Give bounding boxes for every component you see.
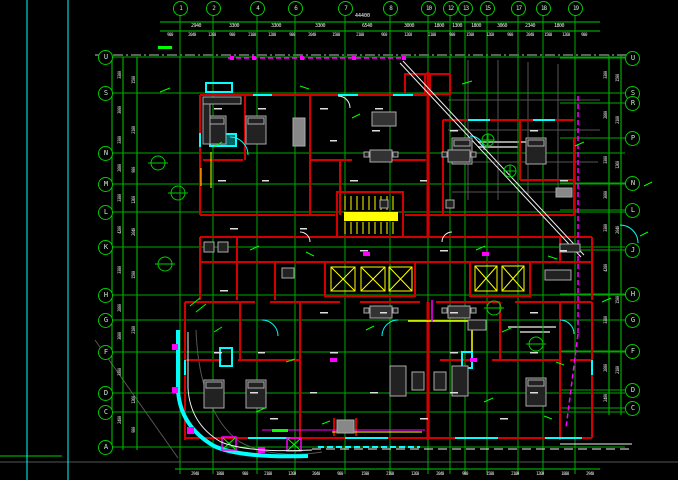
grid-bubble-left-M: M: [98, 177, 113, 192]
dimension-text: 1500: [486, 472, 494, 476]
dimension-text: 1500: [544, 33, 552, 37]
dimension-text: 2040: [132, 228, 136, 236]
dimension-text: 3060: [497, 24, 507, 28]
dimension-text: 1260: [411, 472, 419, 476]
dimension-text: 1500: [132, 271, 136, 279]
dimension-text: 2040: [312, 472, 320, 476]
grid-bubble-top-1: 1: [173, 1, 188, 16]
dimension-text: 1260: [486, 33, 494, 37]
dimension-text: 900: [229, 33, 235, 37]
cad-drawing-canvas[interactable]: 44400 12467810121315171819USNMLKHGFDCAUS…: [0, 0, 678, 480]
dimension-text: 2040: [616, 226, 620, 234]
dimension-text: 1260: [288, 472, 296, 476]
dimension-text: 2400: [604, 394, 608, 402]
dimension-text: 2100: [356, 33, 364, 37]
dimension-text: 2800: [118, 164, 122, 172]
dimension-text: 2100: [248, 33, 256, 37]
grid-bubble-top-8: 8: [383, 1, 398, 16]
dimension-text: 900: [132, 167, 136, 173]
dimension-text: 1500: [616, 296, 620, 304]
grid-bubble-right-C: C: [625, 401, 640, 416]
dimension-text: 1260: [536, 472, 544, 476]
grid-bubble-left-D: D: [98, 386, 113, 401]
dimension-text: 3300: [118, 136, 122, 144]
dimension-text: 900: [337, 472, 343, 476]
grid-labels-overlay: 44400 12467810121315171819USNMLKHGFDCAUS…: [0, 0, 678, 480]
dimension-text: 1800: [471, 24, 481, 28]
grid-bubble-top-18: 18: [536, 1, 551, 16]
dimension-text: 3300: [604, 316, 608, 324]
dimension-text: 2100: [132, 326, 136, 334]
dimension-text: 2400: [118, 416, 122, 424]
dimension-text: 6540: [362, 24, 372, 28]
dimension-text: 1500: [466, 33, 474, 37]
dimension-text: 1800: [434, 24, 444, 28]
dimension-text: 1500: [616, 74, 620, 82]
dimension-text: 3300: [315, 24, 325, 28]
dimension-text: 2100: [511, 472, 519, 476]
dimension-text: 2940: [586, 472, 594, 476]
dimension-text: 4200: [118, 226, 122, 234]
dimension-text: 2100: [616, 366, 620, 374]
dimension-text: 2800: [118, 304, 122, 312]
dimension-text: 1260: [208, 33, 216, 37]
dimension-text: 1200: [268, 33, 276, 37]
dimension-text: 3300: [271, 24, 281, 28]
grid-bubble-right-R: R: [625, 96, 640, 111]
grid-bubble-top-6: 6: [288, 1, 303, 16]
dimension-text: 2940: [191, 24, 201, 28]
dimension-text: 2040: [308, 33, 316, 37]
grid-bubble-top-10: 10: [421, 1, 436, 16]
dimension-text: 3000: [604, 191, 608, 199]
dimension-text: 2800: [604, 111, 608, 119]
dimension-text: 1800: [561, 472, 569, 476]
dimension-text: 2040: [436, 472, 444, 476]
dimension-text: 1260: [132, 396, 136, 404]
dimension-text: 1500: [132, 76, 136, 84]
grid-bubble-left-H: H: [98, 288, 113, 303]
grid-bubble-left-U: U: [98, 50, 113, 65]
dimension-text: 3300: [604, 156, 608, 164]
dimension-text: 900: [167, 33, 173, 37]
grid-bubble-left-A: A: [98, 440, 113, 455]
dimension-text: 900: [462, 472, 468, 476]
grid-bubble-top-2: 2: [206, 1, 221, 16]
grid-bubble-right-J: J: [625, 243, 640, 258]
grid-bubble-top-15: 15: [480, 1, 495, 16]
dimension-text: 900: [507, 33, 513, 37]
grid-bubble-left-F: F: [98, 345, 113, 360]
grid-bubble-right-U: U: [625, 51, 640, 66]
grid-bubble-top-17: 17: [511, 1, 526, 16]
grid-bubble-top-7: 7: [338, 1, 353, 16]
dimension-text: 3000: [118, 106, 122, 114]
dimension-text: 2340: [525, 24, 535, 28]
grid-bubble-right-L: L: [625, 203, 640, 218]
dimension-text: 3300: [118, 71, 122, 79]
dimension-text: 1800: [554, 24, 564, 28]
grid-bubble-top-4: 4: [250, 1, 265, 16]
dimension-text: 2100: [428, 33, 436, 37]
dimension-text: 2100: [616, 116, 620, 124]
dimension-text: 2040: [526, 33, 534, 37]
dimension-text: 1260: [562, 33, 570, 37]
dimension-text: 2100: [264, 472, 272, 476]
dimension-text: 900: [449, 33, 455, 37]
dimension-text: 900: [132, 427, 136, 433]
grid-bubble-top-12: 12: [443, 1, 458, 16]
dimension-text: 3300: [118, 266, 122, 274]
dimension-text: 1500: [332, 33, 340, 37]
dimension-text: 1800: [216, 472, 224, 476]
grid-bubble-right-G: G: [625, 313, 640, 328]
dimension-text: 900: [581, 33, 587, 37]
dimension-text: 2040: [188, 33, 196, 37]
dimension-text: 2100: [386, 472, 394, 476]
grid-bubble-right-N: N: [625, 176, 640, 191]
dimension-text: 2100: [132, 126, 136, 134]
grid-bubble-left-C: C: [98, 405, 113, 420]
dimension-text: 2940: [191, 472, 199, 476]
grid-bubble-left-G: G: [98, 313, 113, 328]
dimension-text: 3000: [404, 24, 414, 28]
dimension-text: 1260: [404, 33, 412, 37]
grid-bubble-right-D: D: [625, 383, 640, 398]
grid-bubble-right-H: H: [625, 287, 640, 302]
dimension-text: 3000: [118, 332, 122, 340]
dimension-text: 3300: [604, 224, 608, 232]
grid-bubble-left-N: N: [98, 146, 113, 161]
dimension-text: 4200: [604, 264, 608, 272]
grid-bubble-left-K: K: [98, 240, 113, 255]
dimension-text: 1500: [361, 472, 369, 476]
grid-bubble-top-19: 19: [568, 1, 583, 16]
grid-bubble-top-13: 13: [458, 1, 473, 16]
dimension-text: 3300: [118, 368, 122, 376]
dimension-text: 900: [242, 472, 248, 476]
grid-bubble-left-L: L: [98, 205, 113, 220]
dimension-text: 1300: [452, 24, 462, 28]
dimension-text: 900: [289, 33, 295, 37]
grid-bubble-right-P: P: [625, 131, 640, 146]
dimension-text: 2800: [604, 364, 608, 372]
total-dimension-label: 44400: [355, 14, 370, 19]
dimension-text: 960: [381, 33, 387, 37]
grid-bubble-right-F: F: [625, 344, 640, 359]
grid-bubble-left-S: S: [98, 86, 113, 101]
dimension-text: 1260: [132, 196, 136, 204]
dimension-text: 3300: [229, 24, 239, 28]
dimension-text: 3300: [604, 71, 608, 79]
dimension-text: 1260: [616, 161, 620, 169]
dimension-text: 3300: [118, 194, 122, 202]
